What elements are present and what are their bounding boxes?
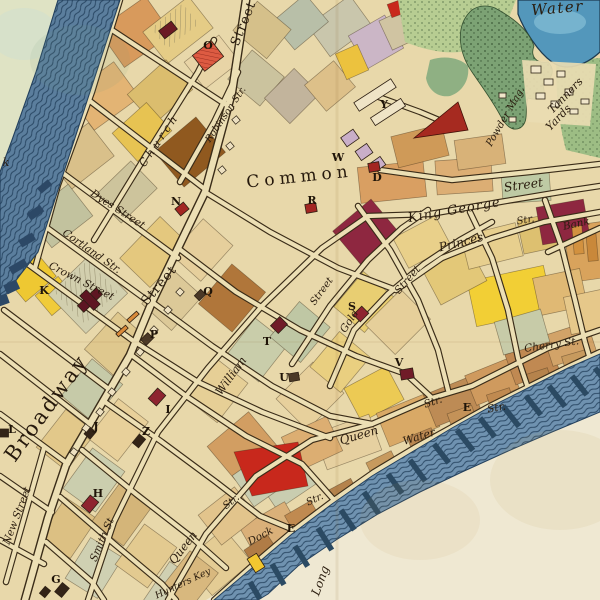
- marker-e-shore: E: [463, 401, 471, 414]
- marker-k: K: [39, 284, 49, 297]
- building-u: [288, 372, 299, 382]
- building-v: [400, 368, 415, 380]
- marker-h: H: [93, 487, 103, 500]
- marker-p: P: [150, 328, 158, 341]
- marker-z: Z: [142, 425, 150, 438]
- marker-w: W: [331, 151, 345, 164]
- historic-map-canvas: Broadway Street Street Church Robinson S…: [0, 0, 600, 600]
- marker-e-dock: E: [287, 522, 295, 535]
- marker-o: O: [203, 39, 213, 52]
- marker-i: I: [165, 403, 170, 416]
- marker-r: R: [307, 194, 317, 207]
- marker-y: Y: [379, 98, 388, 111]
- marker-n: N: [171, 195, 181, 208]
- marker-d: D: [372, 171, 382, 184]
- marker-q: Q: [203, 285, 213, 298]
- street-label-partial-k: k: [3, 156, 10, 169]
- marker-u: U: [279, 371, 289, 384]
- marker-s: S: [348, 300, 356, 313]
- marker-j: J: [92, 420, 98, 433]
- marker-v: V: [394, 356, 404, 369]
- marker-l: L: [8, 423, 16, 436]
- marker-t: T: [263, 335, 272, 348]
- marker-g: G: [51, 573, 60, 586]
- historic-map-screenshot: Broadway Street Street Church Robinson S…: [0, 0, 600, 600]
